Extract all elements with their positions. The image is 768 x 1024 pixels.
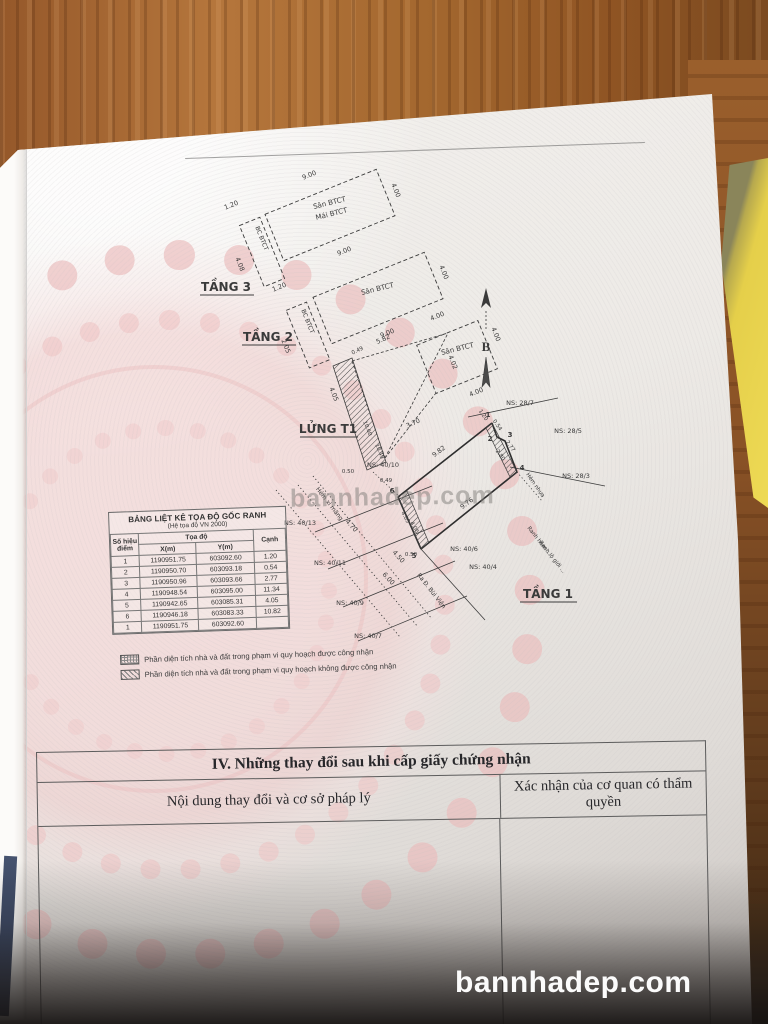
site-watermark: bannhadep.com: [455, 966, 692, 1000]
room-label: Sân BTCT: [440, 341, 475, 357]
dimension-label: 4.00: [389, 182, 402, 198]
dimension-label: 0.49: [351, 346, 365, 357]
dimension-label: NS: 40/11: [314, 559, 346, 567]
dimension-label: 4.02: [446, 354, 459, 370]
dimension-label: 4.00: [429, 310, 445, 323]
coordinate-table: BẢNG LIỆT KÊ TỌA ĐỘ GỐC RANH (Hệ tọa độ …: [108, 506, 290, 635]
section4-empty-left: [38, 819, 503, 1024]
dimension-label: NS: 28/7: [506, 399, 534, 407]
point-number: 5: [412, 552, 417, 560]
coord-cell: 603092.60: [199, 617, 257, 630]
north-letter: B: [482, 339, 491, 354]
dimension-label: 9.82: [431, 444, 447, 459]
floor3-balcony-outline: [239, 217, 284, 286]
coord-table-body: 11190951.75603092.601.2021190950.7060309…: [111, 550, 289, 633]
dimension-label: 4.70: [344, 518, 360, 534]
boundary-label: Ranh lộ giới …: [537, 539, 567, 575]
dimension-label: 4.05: [327, 386, 340, 402]
dimension-label: NS: 40/4: [469, 563, 497, 571]
coord-cell: 1190951.75: [142, 619, 199, 632]
point-number: 2: [488, 435, 493, 443]
mezzanine-label: LỬNG T1: [299, 420, 357, 436]
point-number: 4: [520, 464, 525, 472]
section4-col-right-header: Xác nhận của cơ quan có thẩm quyền: [499, 771, 706, 817]
diagonal-swatch-icon: [121, 669, 140, 680]
photo-of-land-certificate: III. Sơ đồ thửa đất, nhà ở và tài sản kh…: [0, 0, 768, 1024]
dimension-label: NS: 40/9: [336, 599, 364, 607]
dimension-label: NS: 40/7: [354, 632, 382, 640]
dimension-label: NS: 40/6: [450, 545, 478, 553]
coord-table-grid: Số hiệu điểm Tọa độ Cạnh X(m) Y(m) 11190…: [110, 528, 289, 634]
dimension-label: 3.70: [405, 417, 422, 430]
dimension-label: 0.50: [342, 469, 355, 475]
faint-watermark: bannhadep.com: [290, 481, 495, 514]
dimension-label: NS: 28/5: [554, 427, 582, 435]
legend-label: Phần diện tích nhà và đất trong phạm vi …: [145, 661, 397, 679]
coord-cell: 1: [113, 621, 142, 633]
street-label: Hẻm nhựa: [524, 471, 546, 498]
point-number: 3: [508, 431, 513, 439]
room-label: BC BTCT: [299, 308, 315, 334]
col-header-point: Số hiệu điểm: [110, 533, 139, 556]
col-header-edge: Cạnh: [254, 528, 286, 551]
dimension-label: NS: 40/10: [367, 461, 399, 469]
point-number: 1: [486, 411, 491, 419]
section4-col-left-header: Nội dung thay đổi và cơ sở pháp lý: [38, 775, 501, 826]
dimension-label: 5.82: [375, 333, 392, 346]
room-label: Sân BTCT: [360, 281, 395, 297]
dimension-label: 9.00: [336, 245, 352, 258]
dimension-label: 4.00: [489, 326, 502, 342]
room-label: BC BTCT: [253, 225, 269, 251]
crosshatch-swatch-icon: [120, 654, 139, 665]
certificate-page: III. Sơ đồ thửa đất, nhà ở và tài sản kh…: [0, 0, 768, 1024]
floor2-terrace-outline: [313, 252, 443, 343]
floor1-label: TẦNG 1: [523, 584, 573, 601]
dimension-label: 4.00: [437, 264, 450, 280]
dimension-label: NS: 28/3: [562, 472, 590, 480]
dimension-label: 4.00: [468, 386, 484, 399]
floor3-label: TẦNG 3: [201, 277, 251, 294]
coord-cell: [257, 616, 289, 628]
dimension-label: 1.20: [223, 199, 239, 212]
dimension-label: 4.08: [233, 256, 246, 272]
dimension-label: 9.00: [301, 169, 317, 182]
dimension-label: NS: 40/13: [284, 519, 316, 527]
